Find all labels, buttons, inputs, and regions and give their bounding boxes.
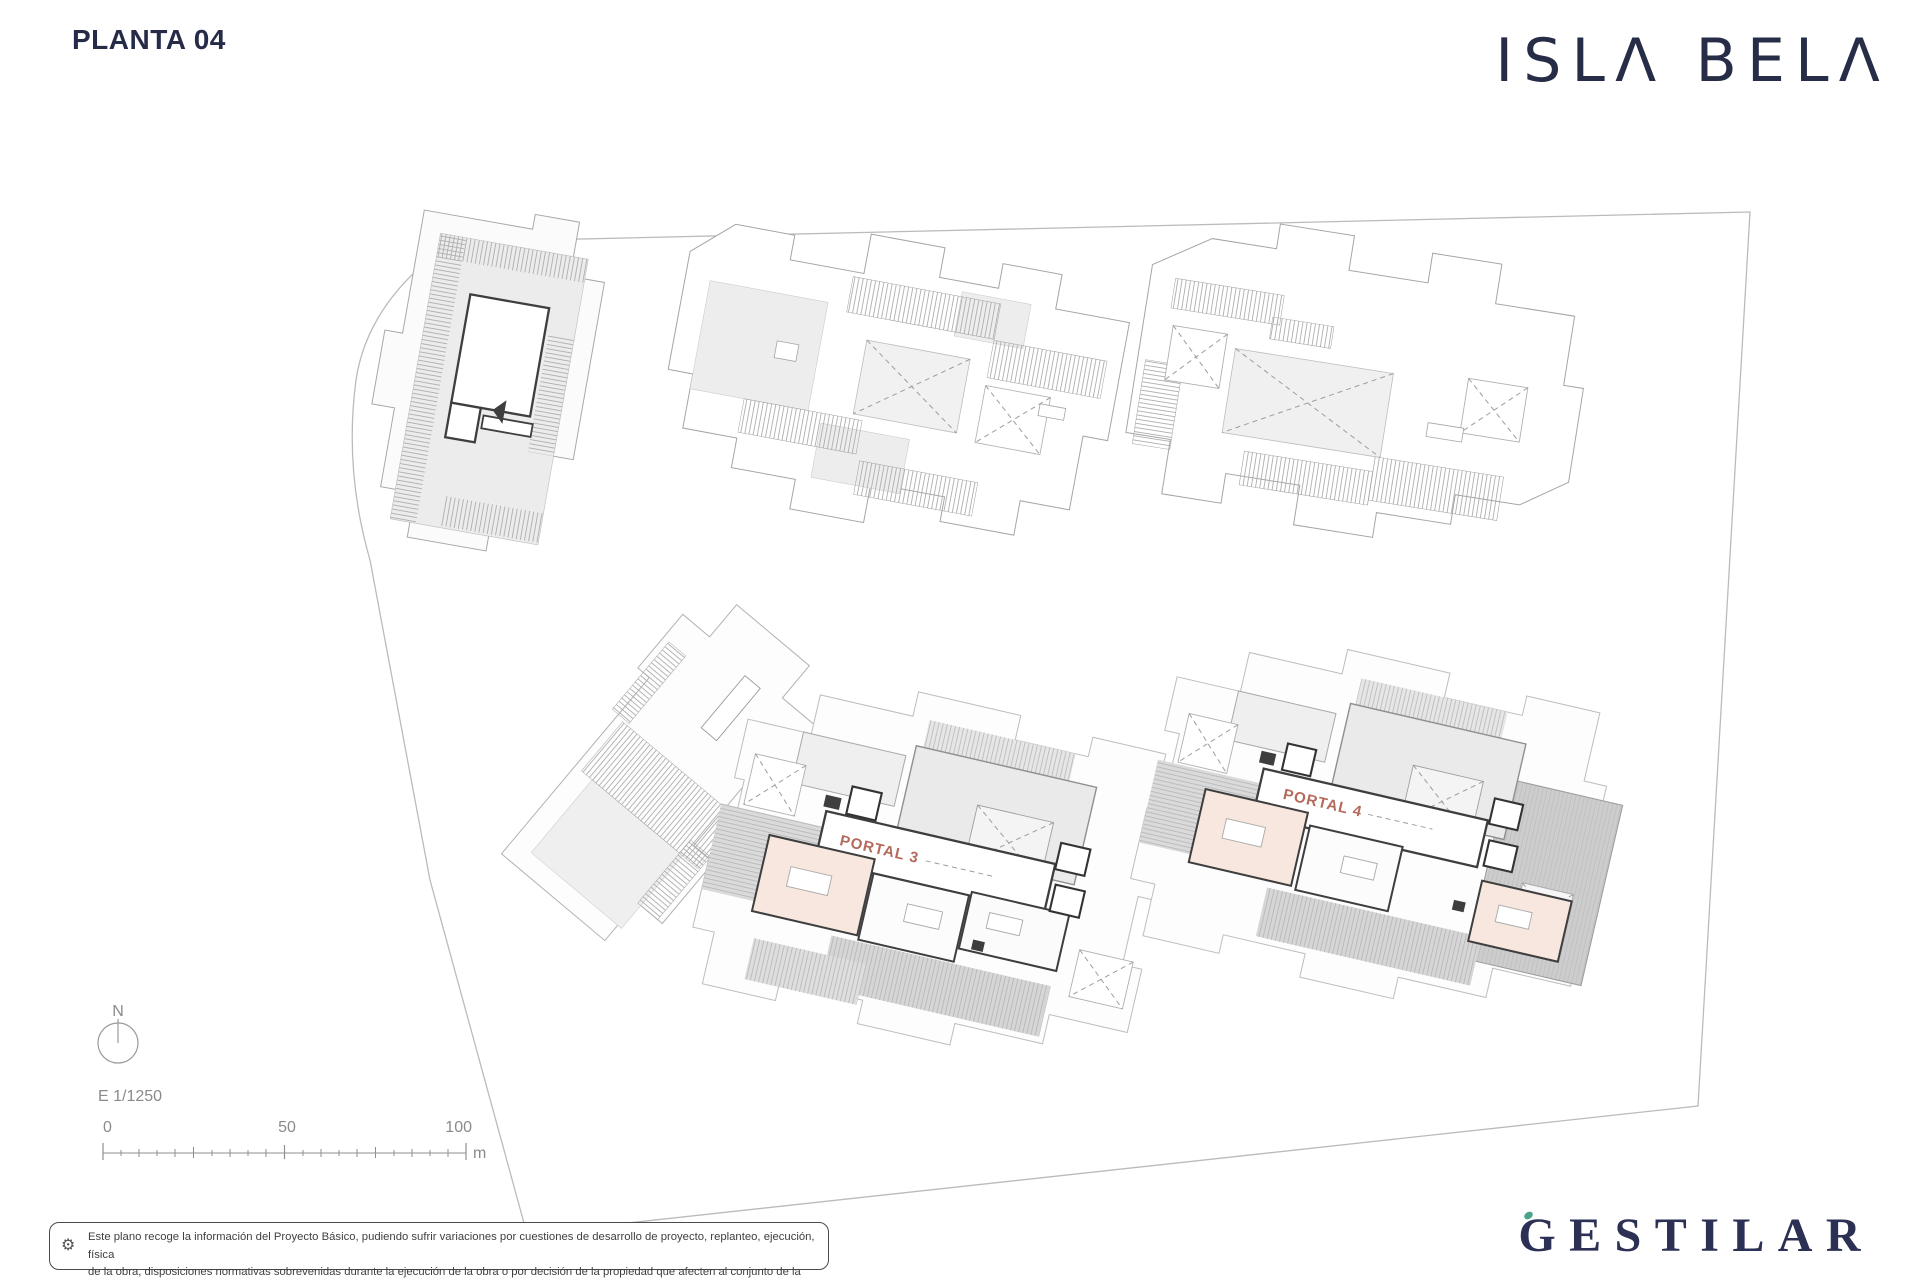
disclaimer-line-2: de la obra, disposiciones normativas sob… bbox=[88, 1264, 818, 1280]
scale-bar: E 1/1250 0 50 100 m bbox=[98, 1088, 486, 1162]
scale-tick-50: 50 bbox=[278, 1119, 296, 1136]
disclaimer-text: Este plano recoge la información del Pro… bbox=[88, 1229, 818, 1280]
plan-sheet: PORTAL 3 bbox=[0, 0, 1920, 1280]
project-logo: ISLΛ BELΛ bbox=[1495, 26, 1890, 96]
page-title: PLANTA 04 bbox=[72, 24, 226, 56]
scale-ratio: E 1/1250 bbox=[98, 1088, 162, 1105]
scale-tick-0: 0 bbox=[103, 1119, 112, 1136]
scale-tick-100: 100 bbox=[445, 1119, 472, 1136]
gear-icon: ⚙ bbox=[61, 1237, 75, 1253]
developer-logo: GESTILAR bbox=[1518, 1208, 1874, 1263]
north-label: N bbox=[112, 1003, 124, 1020]
site-plan-drawing: PORTAL 3 bbox=[0, 0, 1920, 1280]
scale-unit: m bbox=[473, 1145, 486, 1162]
disclaimer-box: ⚙ Este plano recoge la información del P… bbox=[49, 1222, 829, 1270]
disclaimer-line-1: Este plano recoge la información del Pro… bbox=[88, 1229, 818, 1264]
developer-logo-text: GESTILAR bbox=[1518, 1209, 1874, 1262]
north-arrow: N bbox=[98, 1003, 138, 1063]
